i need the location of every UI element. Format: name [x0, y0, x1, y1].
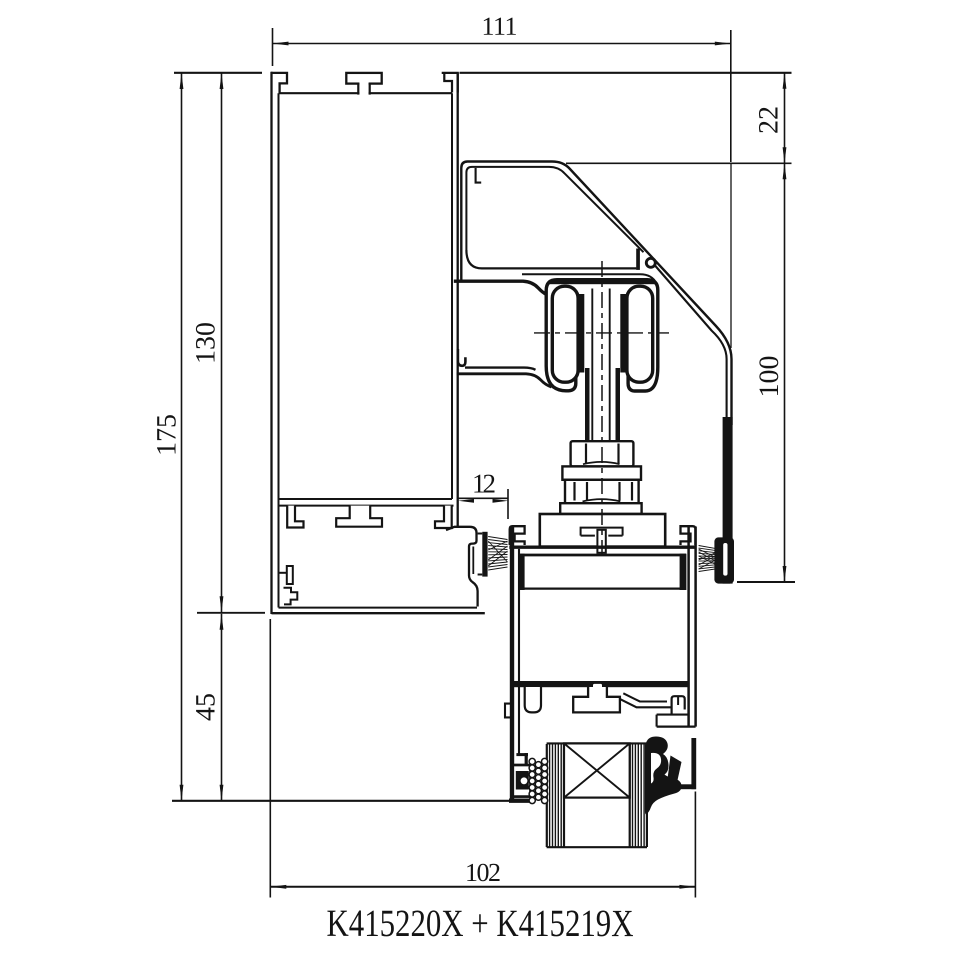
svg-text:175: 175 — [152, 414, 183, 456]
svg-text:130: 130 — [191, 322, 222, 364]
svg-text:111: 111 — [481, 12, 517, 41]
svg-text:100: 100 — [754, 356, 785, 398]
svg-text:12: 12 — [472, 468, 496, 498]
svg-text:22: 22 — [754, 106, 785, 134]
svg-text:45: 45 — [191, 693, 222, 721]
svg-text:K415220X + K415219X: K415220X + K415219X — [326, 903, 633, 945]
svg-text:102: 102 — [465, 858, 501, 887]
